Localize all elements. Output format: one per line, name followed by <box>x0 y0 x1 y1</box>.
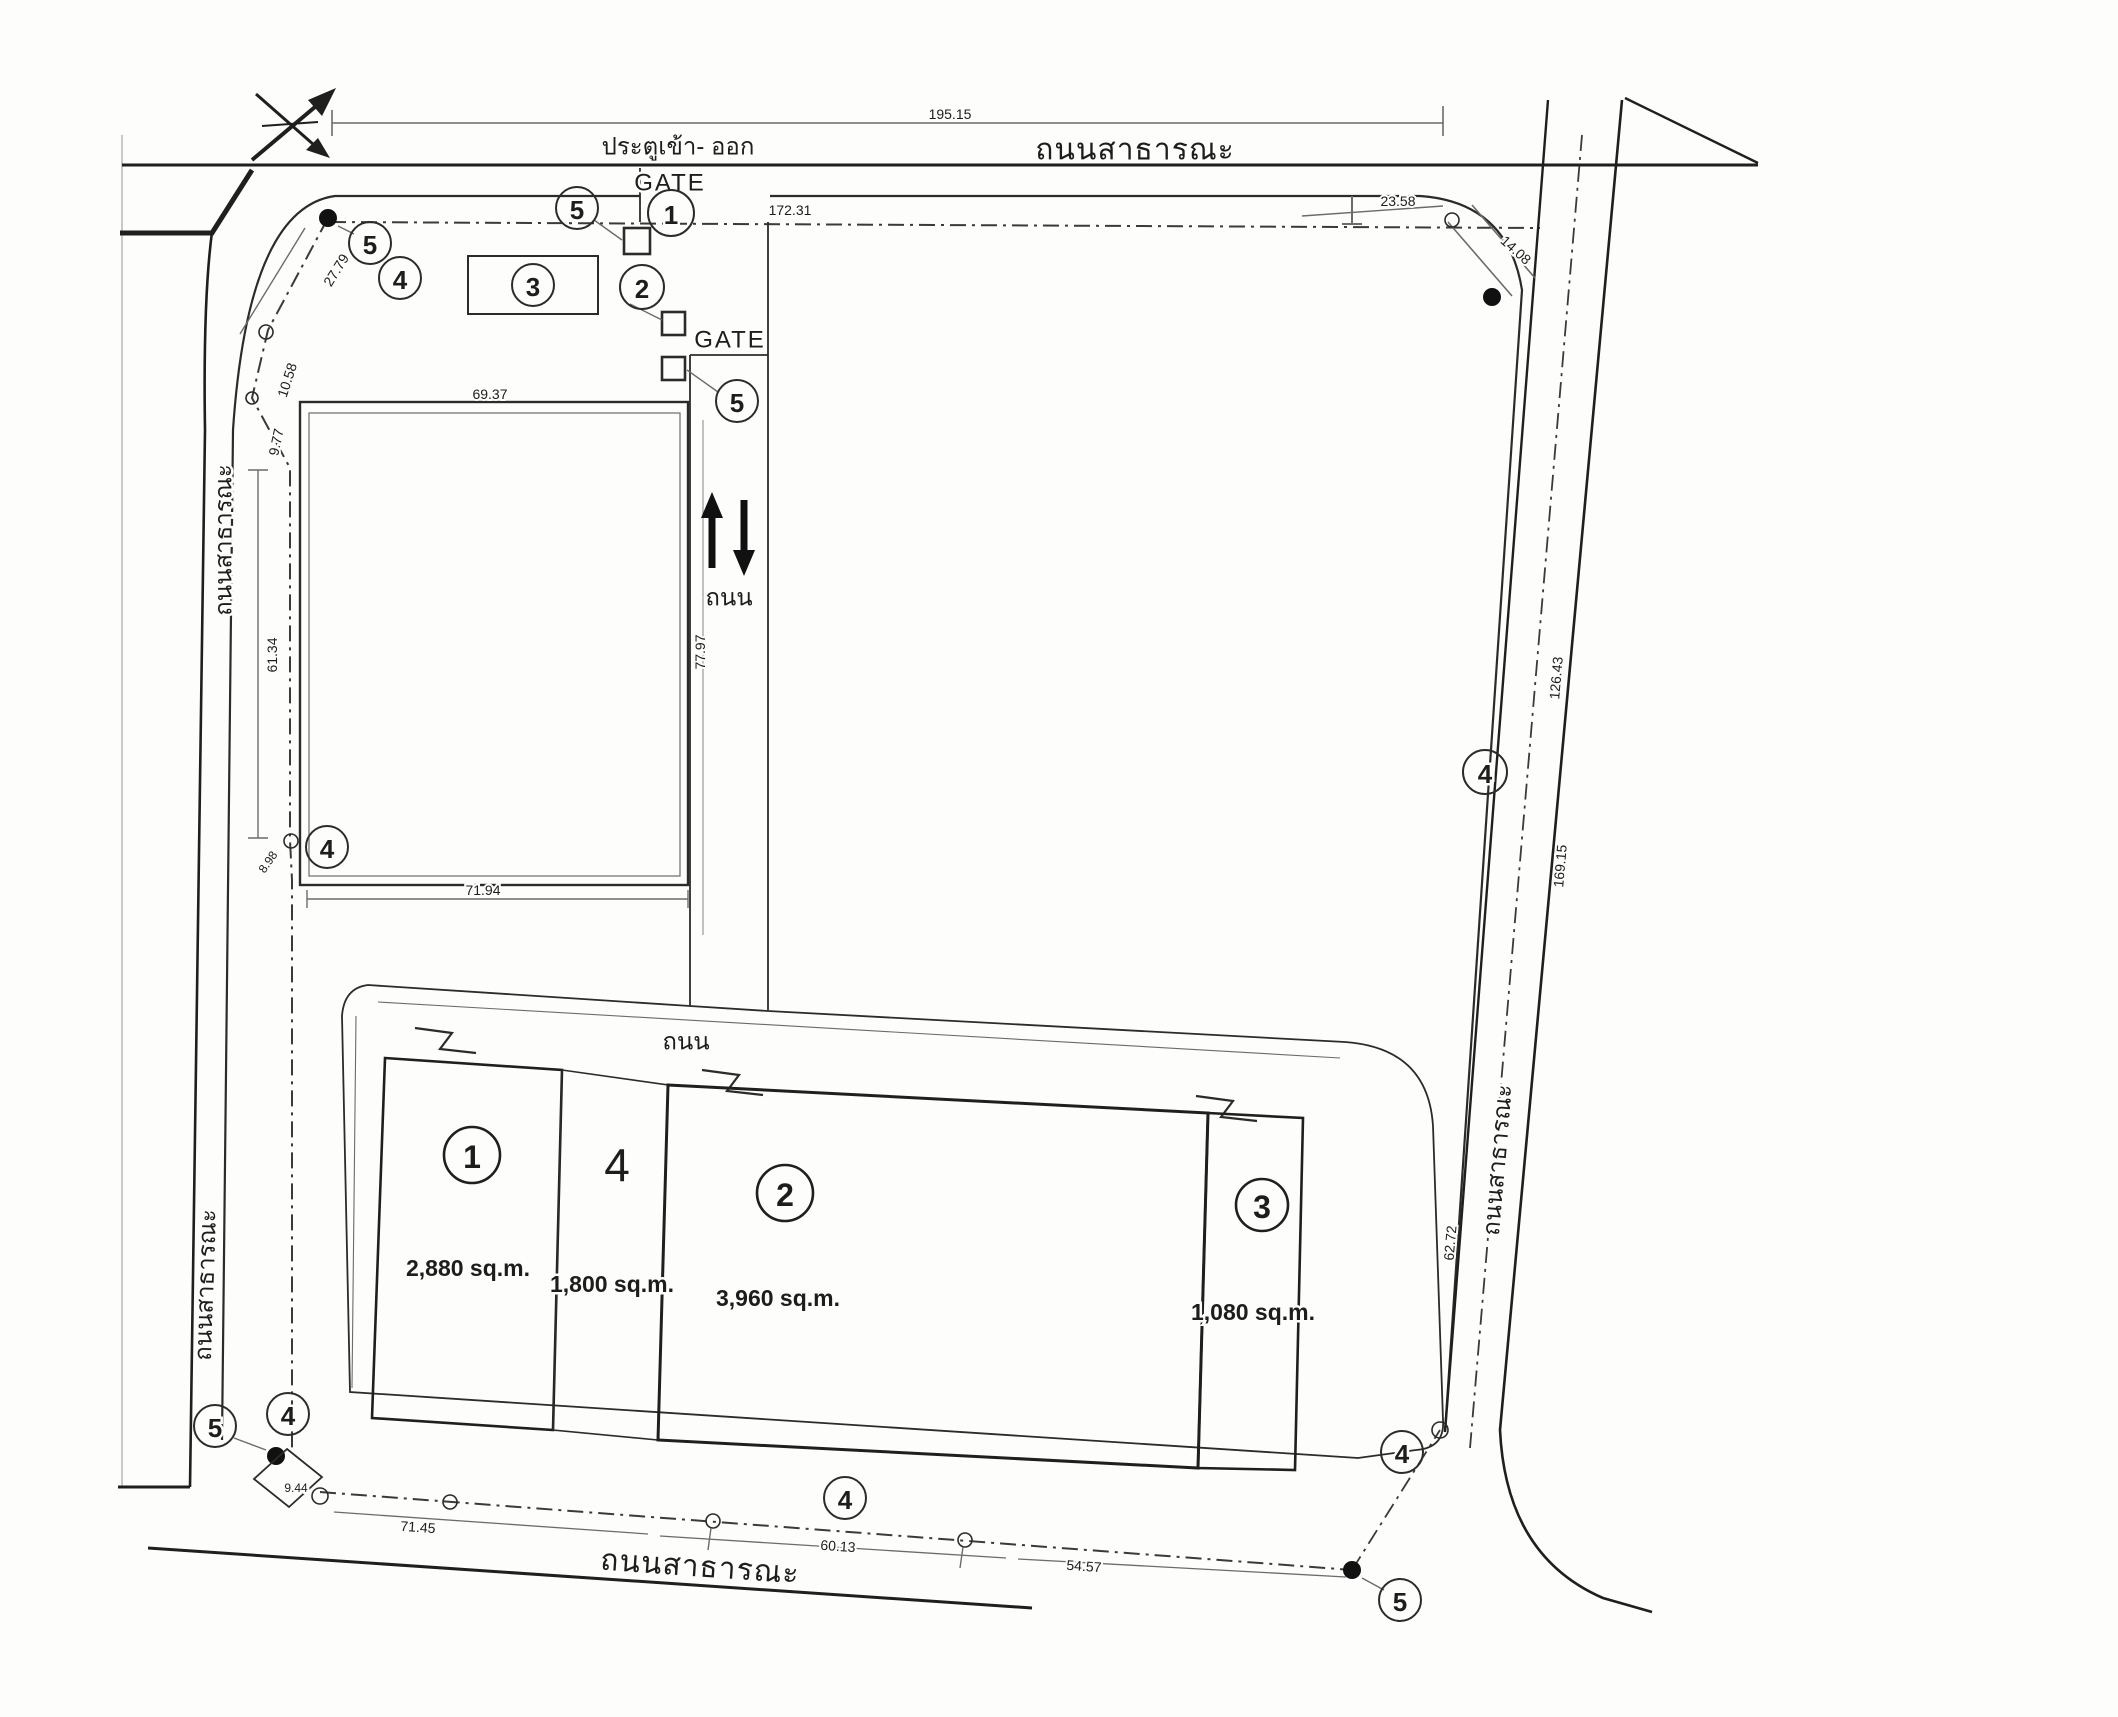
svg-text:5: 5 <box>363 230 377 260</box>
svg-text:2: 2 <box>635 274 649 304</box>
dim-top-seg-left: 172.31 <box>769 202 812 218</box>
right-road-right-line <box>1500 100 1652 1612</box>
svg-text:4: 4 <box>1478 759 1493 789</box>
road-break-mark <box>415 1028 1257 1121</box>
dim-west-c: 8.98 <box>256 848 281 875</box>
gate1-post-square <box>624 228 650 254</box>
bottom-left-monument: 9.44 <box>234 1438 328 1507</box>
plot-3-boundary <box>1198 1113 1303 1470</box>
dim-top-total: 195.15 <box>332 106 1443 136</box>
north-arrow-icon <box>252 88 336 160</box>
svg-text:71.94: 71.94 <box>465 882 500 898</box>
svg-text:5: 5 <box>730 388 744 418</box>
dim-right-lower: 169.15 <box>1550 844 1570 888</box>
marker-5-bottomright: 5 <box>1379 1579 1421 1621</box>
marker-4-bottomleft: 4 <box>267 1393 309 1435</box>
top-left-corner-mark <box>120 170 252 233</box>
marker-4-west: 4 <box>306 826 348 868</box>
dim-bottom-a: 71.45 <box>400 1518 436 1536</box>
entrance-exit-label: ประตูเข้า- ออก <box>602 134 755 162</box>
leader <box>687 370 718 392</box>
bottom-parcel-inner-line-left <box>352 1016 356 1388</box>
svg-text:2,880 sq.m.: 2,880 sq.m. <box>406 1255 530 1281</box>
marker-5-topleft: 5 <box>349 222 391 264</box>
plot-3-labels: 3 1,080 sq.m. <box>1191 1179 1315 1325</box>
svg-text:1: 1 <box>463 1139 481 1175</box>
dim-west-b: 9.77 <box>265 427 286 457</box>
marker-4-topleft: 4 <box>379 257 421 299</box>
two-way-arrows-icon <box>701 492 755 576</box>
right-road-label: ถนนสาธารณะ <box>1478 1083 1518 1236</box>
upper-left-building <box>300 402 688 885</box>
dim-building-top: 69.37 <box>472 386 507 402</box>
plot-1-boundary <box>372 1058 562 1430</box>
monument-dot <box>267 1447 285 1465</box>
dim-west-a: 10.58 <box>274 361 300 399</box>
plot-4-boundary <box>553 1070 668 1440</box>
boundary-point <box>312 1488 328 1504</box>
dim-top-total-label: 195.15 <box>929 106 972 122</box>
marker-4-right: 4 <box>1463 750 1507 794</box>
dim-west-vert: 61.34 <box>248 470 280 838</box>
boundary-top-right <box>770 196 1522 1432</box>
svg-text:4: 4 <box>604 1139 630 1191</box>
dim-top-seg-right: 23.58 <box>1302 193 1443 224</box>
leader <box>234 1438 266 1450</box>
gate2-label: GATE <box>694 327 766 354</box>
svg-text:23.58: 23.58 <box>1380 193 1415 209</box>
site-plan-drawing: 195.15 172.31 23.58 ประตูเข้า- ออก ถนนสา… <box>0 0 2118 1717</box>
marker-5-gate1: 5 <box>556 187 598 229</box>
dim-right-bottom: 62.72 <box>1441 1225 1460 1262</box>
left-road-label-upper: ถนนสาธารณะ <box>211 464 238 616</box>
dim-building-side: 77.97 <box>692 634 708 669</box>
dim-bottom-c: 54.57 <box>1066 1557 1102 1575</box>
plot-2-boundary <box>658 1085 1208 1468</box>
leader <box>1362 1578 1384 1590</box>
svg-text:1,800 sq.m.: 1,800 sq.m. <box>550 1271 674 1297</box>
marker-2-gate2: 2 <box>620 265 664 309</box>
svg-text:5: 5 <box>1393 1587 1407 1617</box>
svg-text:4: 4 <box>281 1401 296 1431</box>
plot-1-labels: 1 2,880 sq.m. <box>406 1127 530 1281</box>
gate2-post-square-a <box>662 312 685 335</box>
svg-text:5: 5 <box>570 195 584 225</box>
svg-text:5: 5 <box>208 1413 222 1443</box>
marker-5-gate2: 5 <box>716 380 758 422</box>
gate2-post-square-b <box>662 357 685 380</box>
svg-text:4: 4 <box>393 265 408 295</box>
bottom-road-label: ถนนสาธารณะ <box>599 1544 800 1591</box>
dim-bottom-b: 60.13 <box>820 1537 856 1555</box>
bottom-parcel-inner-line <box>378 1002 1340 1058</box>
svg-text:3: 3 <box>526 272 540 302</box>
marker-4-bottommid: 4 <box>824 1477 866 1519</box>
svg-text:3: 3 <box>1253 1189 1271 1225</box>
property-line-south <box>320 1492 1352 1570</box>
marker-4-bottomright: 4 <box>1381 1431 1423 1473</box>
marker-3-box: 3 <box>468 256 598 314</box>
boundary-point <box>958 1533 972 1547</box>
site-plan-page: 195.15 172.31 23.58 ประตูเข้า- ออก ถนนสา… <box>0 0 2118 1717</box>
svg-text:61.34: 61.34 <box>264 637 280 672</box>
gate1-label: GATE <box>634 170 706 197</box>
svg-text:4: 4 <box>838 1485 853 1515</box>
crossroad-ne-corner <box>1625 98 1758 163</box>
monument-dot <box>1343 1561 1361 1579</box>
svg-text:2: 2 <box>776 1177 794 1213</box>
svg-text:4: 4 <box>1395 1439 1410 1469</box>
leader <box>630 304 662 320</box>
parcel-road-label: ถนน <box>662 1029 709 1056</box>
plot-4-labels: 4 1,800 sq.m. <box>550 1139 674 1297</box>
corner-monument-dot <box>319 209 337 227</box>
top-road-label: ถนนสาธารณะ <box>1035 134 1235 167</box>
bottom-parcel-outline <box>342 985 1443 1458</box>
dim-bottom-corner: 9.44 <box>284 1481 308 1495</box>
central-road-label: ถนน <box>705 585 752 612</box>
svg-text:1,080 sq.m.: 1,080 sq.m. <box>1191 1299 1315 1325</box>
tick <box>960 1547 963 1568</box>
dim-right-upper: 126.43 <box>1546 656 1566 700</box>
bottom-road-south-edge <box>148 1548 1032 1608</box>
svg-text:3,960 sq.m.: 3,960 sq.m. <box>716 1285 840 1311</box>
svg-text:1: 1 <box>664 200 678 230</box>
right-road-centre-line <box>1470 135 1582 1448</box>
svg-text:4: 4 <box>320 834 335 864</box>
dim-west-diag: 27.79 <box>320 251 352 289</box>
left-road-label-lower: ถนนสาธารณะ <box>190 1209 222 1361</box>
plot-2-labels: 2 3,960 sq.m. <box>716 1165 840 1311</box>
marker-5-bottomleft: 5 <box>194 1405 236 1447</box>
dim-line-bottom-a <box>334 1512 648 1534</box>
marker-1-gate1: 1 <box>648 190 694 236</box>
